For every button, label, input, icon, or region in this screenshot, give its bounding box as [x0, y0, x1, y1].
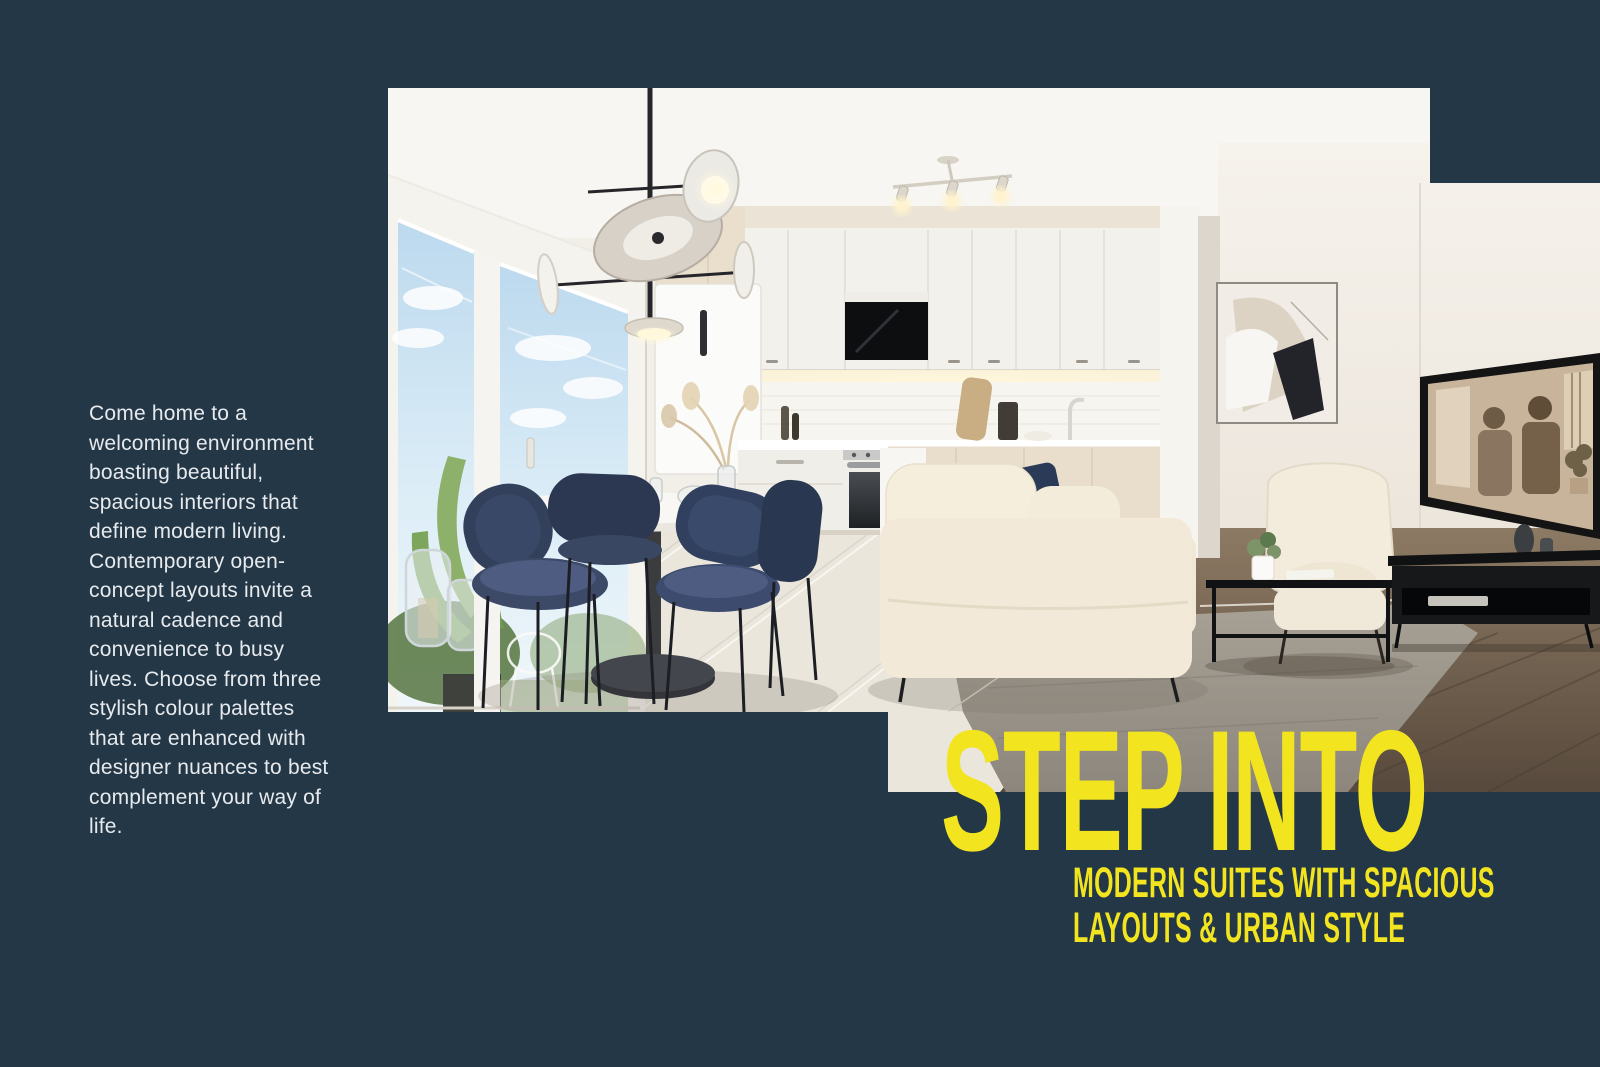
tv-figure-2 [1528, 396, 1552, 420]
upper-cabinets [745, 228, 1160, 370]
books [1286, 569, 1334, 580]
abstract-art [1217, 283, 1337, 423]
hero-subheadline-line2: LAYOUTS & URBAN STYLE [1073, 907, 1600, 950]
suite-photo-illustration [388, 88, 1600, 792]
hero-subheadline-line2-text: LAYOUTS & URBAN STYLE [1073, 907, 1405, 950]
plant-pot [1252, 556, 1274, 580]
fridge-handle [700, 310, 707, 356]
backsplash [745, 382, 1160, 440]
hero-headline: STEP INTO [941, 705, 1600, 877]
hero-subheadline-line1-text: MODERN SUITES WITH SPACIOUS [1073, 862, 1495, 905]
door-handle [527, 438, 534, 468]
hero-subheadline-line1: MODERN SUITES WITH SPACIOUS [1073, 862, 1600, 905]
vase [1514, 524, 1534, 556]
brochure-page: Come home to a welcoming environment boa… [0, 0, 1600, 1067]
intro-paragraph: Come home to a welcoming environment boa… [89, 399, 333, 842]
tv-figure-1 [1483, 407, 1505, 429]
hero-headline-text: STEP INTO [941, 705, 1427, 877]
pillar [1160, 206, 1200, 558]
disc-shade-edge [734, 242, 754, 298]
suite-interior-photo [388, 88, 1600, 792]
